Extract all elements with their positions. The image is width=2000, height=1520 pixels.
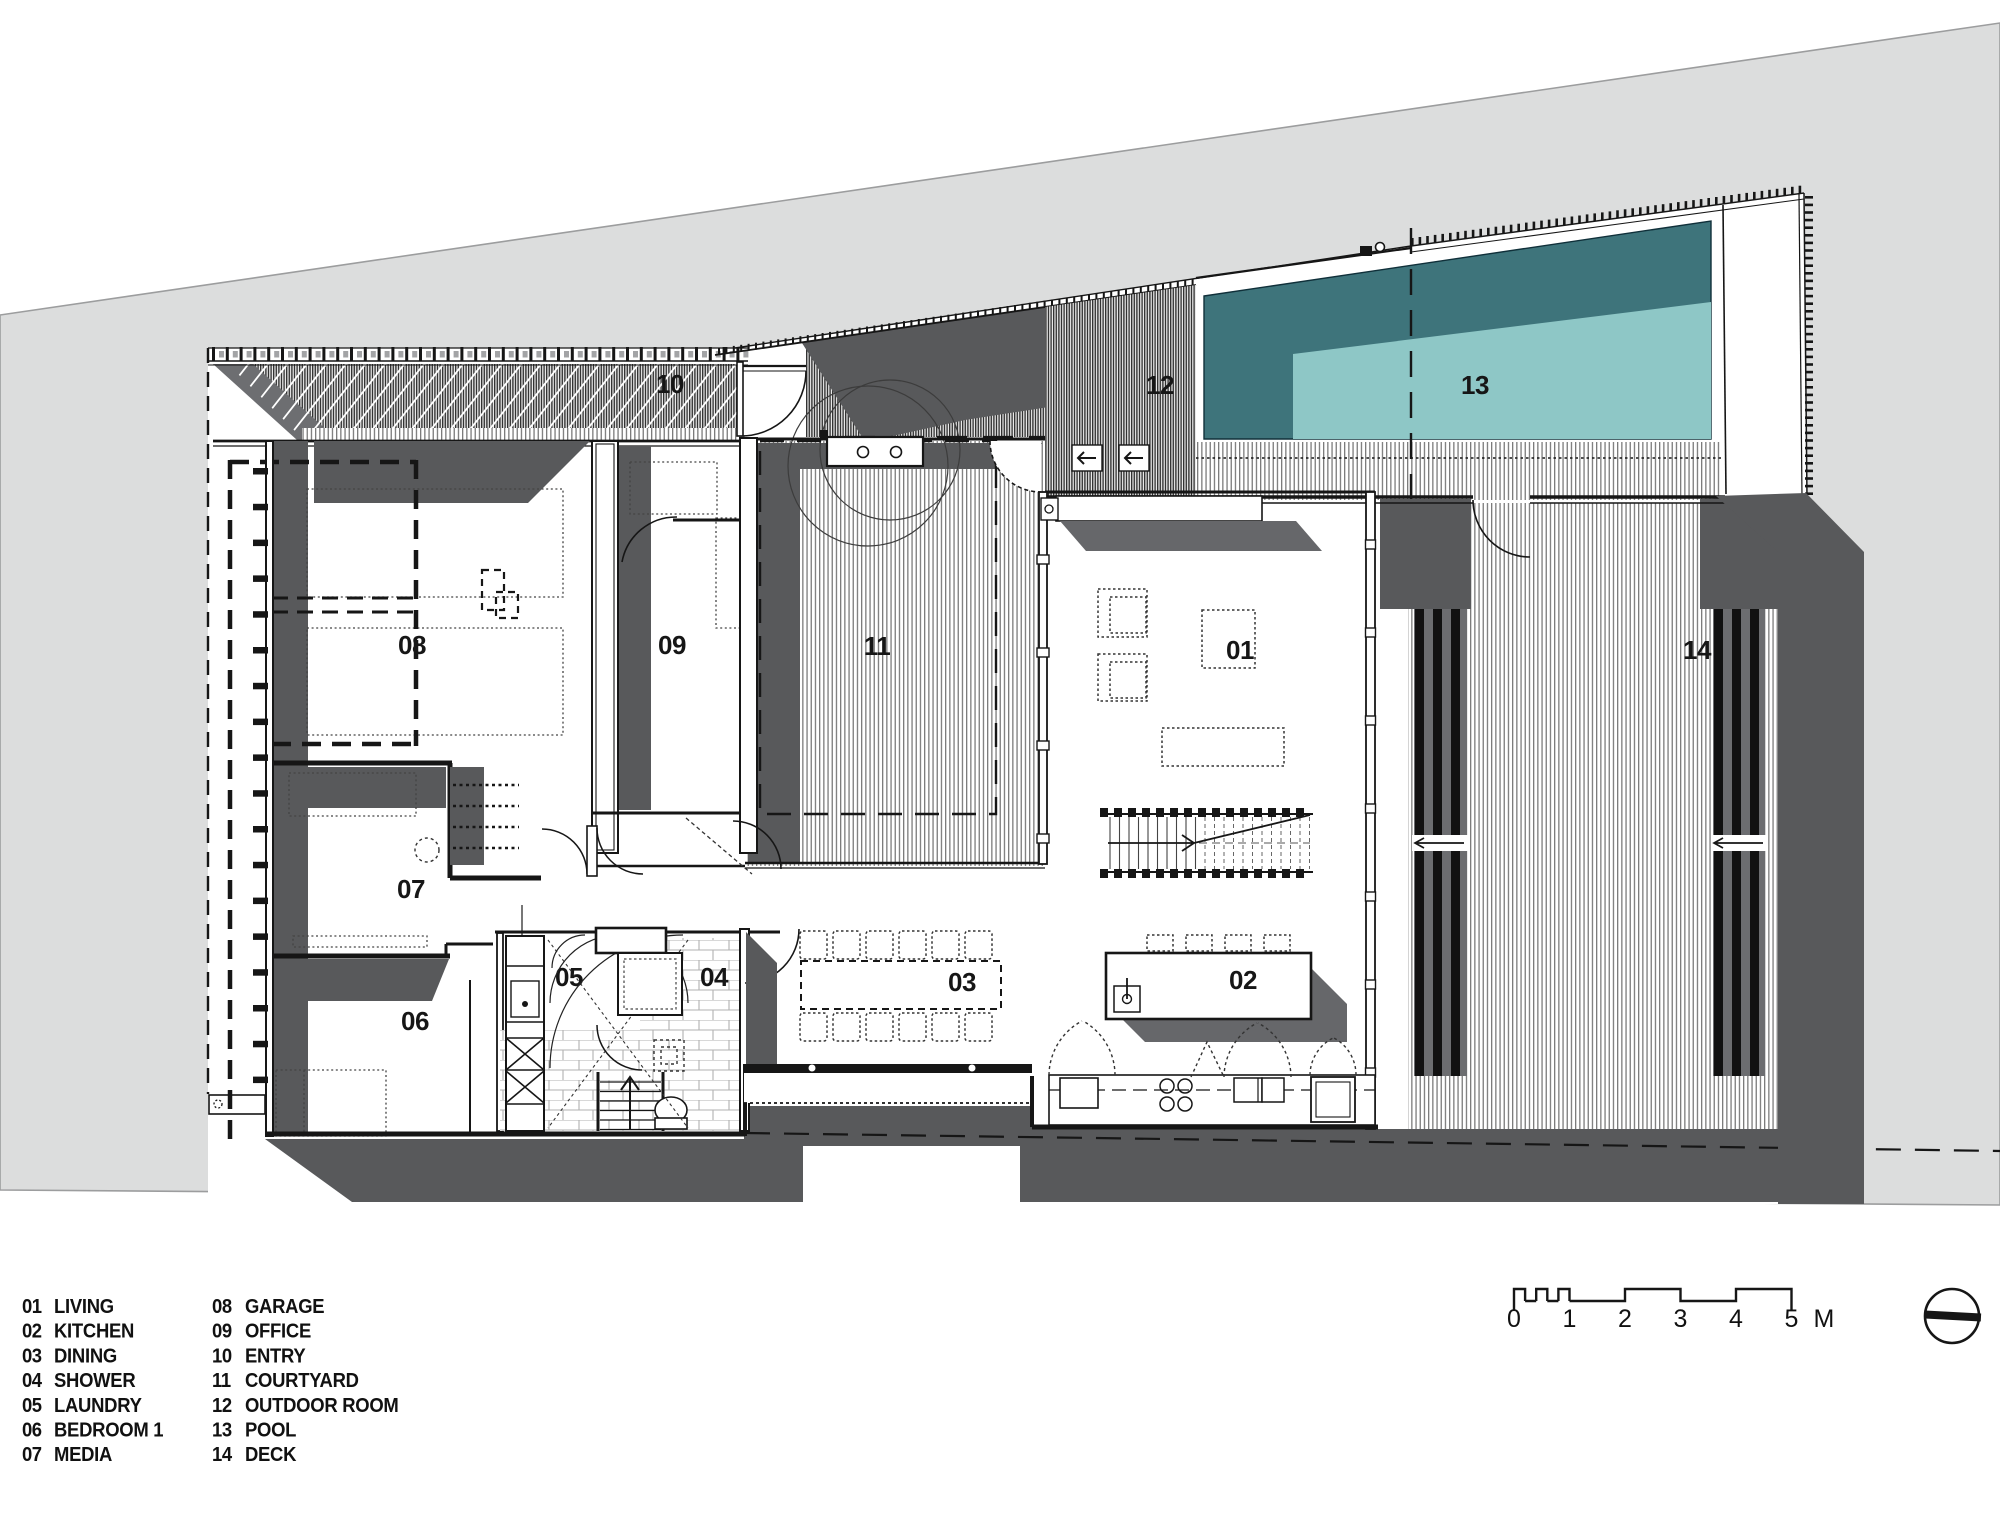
svg-text:14: 14: [212, 1443, 232, 1466]
svg-text:06: 06: [401, 1006, 429, 1036]
svg-text:05: 05: [555, 962, 583, 992]
svg-text:1: 1: [1563, 1305, 1577, 1333]
svg-text:GARAGE: GARAGE: [245, 1295, 325, 1318]
svg-text:5: 5: [1785, 1305, 1799, 1333]
svg-text:10: 10: [212, 1345, 232, 1368]
svg-text:02: 02: [22, 1320, 42, 1343]
svg-text:POOL: POOL: [245, 1419, 297, 1442]
svg-text:OUTDOOR ROOM: OUTDOOR ROOM: [245, 1394, 399, 1417]
svg-text:0: 0: [1507, 1305, 1521, 1333]
svg-text:08: 08: [212, 1295, 232, 1318]
svg-text:3: 3: [1674, 1305, 1688, 1333]
svg-text:DINING: DINING: [54, 1345, 117, 1368]
svg-text:BEDROOM 1: BEDROOM 1: [54, 1419, 164, 1442]
svg-text:DECK: DECK: [245, 1443, 296, 1466]
svg-text:09: 09: [212, 1320, 232, 1343]
svg-text:08: 08: [398, 630, 426, 660]
svg-text:MEDIA: MEDIA: [54, 1443, 112, 1466]
svg-text:02: 02: [1229, 965, 1257, 995]
svg-text:13: 13: [212, 1419, 232, 1442]
svg-text:04: 04: [22, 1369, 42, 1392]
svg-text:LAUNDRY: LAUNDRY: [54, 1394, 142, 1417]
svg-text:07: 07: [22, 1443, 42, 1466]
svg-text:2: 2: [1618, 1305, 1632, 1333]
svg-text:07: 07: [397, 874, 425, 904]
svg-text:04: 04: [700, 962, 729, 992]
svg-text:ENTRY: ENTRY: [245, 1345, 306, 1368]
svg-text:KITCHEN: KITCHEN: [54, 1320, 134, 1343]
svg-text:13: 13: [1461, 370, 1489, 400]
svg-text:LIVING: LIVING: [54, 1295, 114, 1318]
svg-text:10: 10: [656, 369, 684, 399]
svg-text:01: 01: [22, 1295, 42, 1318]
svg-text:M: M: [1814, 1305, 1835, 1333]
svg-text:05: 05: [22, 1394, 42, 1417]
svg-text:14: 14: [1683, 635, 1712, 665]
svg-text:03: 03: [948, 967, 976, 997]
svg-text:OFFICE: OFFICE: [245, 1320, 311, 1343]
svg-text:SHOWER: SHOWER: [54, 1369, 136, 1392]
svg-text:09: 09: [658, 630, 686, 660]
svg-text:11: 11: [212, 1369, 231, 1392]
svg-text:06: 06: [22, 1419, 42, 1442]
svg-text:01: 01: [1226, 635, 1254, 665]
svg-text:12: 12: [1146, 370, 1174, 400]
svg-text:12: 12: [212, 1394, 232, 1417]
svg-text:11: 11: [864, 631, 891, 661]
svg-text:4: 4: [1729, 1305, 1743, 1333]
svg-text:03: 03: [22, 1345, 42, 1368]
svg-text:COURTYARD: COURTYARD: [245, 1369, 359, 1392]
